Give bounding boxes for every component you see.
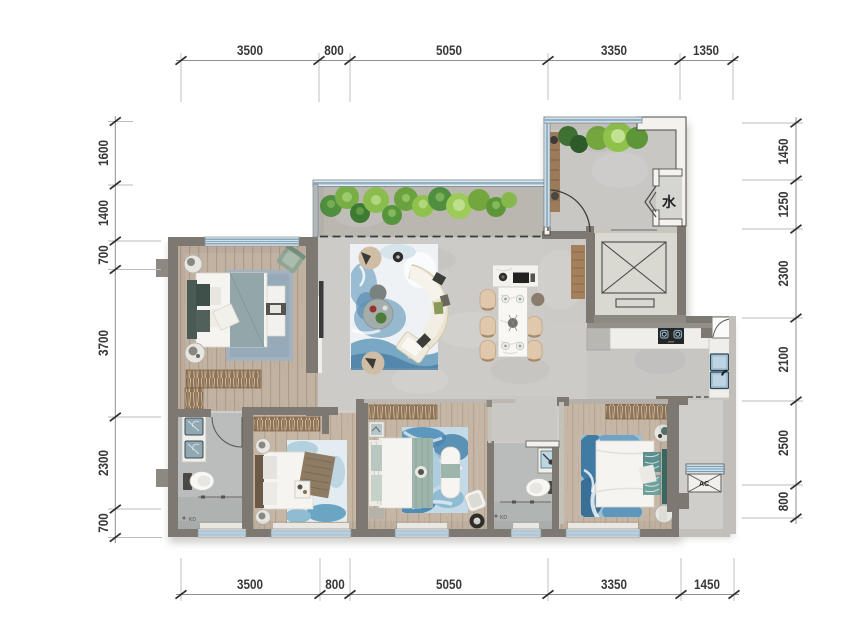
svg-text:800: 800	[775, 492, 791, 512]
svg-text:3500: 3500	[237, 576, 263, 592]
svg-text:1250: 1250	[775, 191, 791, 217]
svg-text:2100: 2100	[775, 346, 791, 372]
svg-text:3500: 3500	[237, 42, 263, 58]
svg-text:1400: 1400	[95, 200, 111, 226]
svg-text:800: 800	[324, 42, 344, 58]
svg-text:3700: 3700	[95, 330, 111, 356]
svg-text:700: 700	[95, 513, 111, 533]
svg-text:KD: KD	[500, 515, 507, 521]
svg-text:2300: 2300	[95, 450, 111, 476]
svg-text:1450: 1450	[775, 138, 791, 164]
svg-text:水: 水	[662, 194, 677, 210]
svg-text:3350: 3350	[601, 576, 627, 592]
svg-text:3350: 3350	[601, 42, 627, 58]
svg-text:AC: AC	[699, 481, 709, 488]
svg-text:5050: 5050	[436, 576, 462, 592]
svg-text:1350: 1350	[693, 42, 719, 58]
svg-text:2500: 2500	[775, 430, 791, 456]
svg-text:1450: 1450	[694, 576, 720, 592]
svg-text:700: 700	[95, 245, 111, 265]
svg-text:1600: 1600	[95, 140, 111, 166]
svg-text:5050: 5050	[436, 42, 462, 58]
svg-text:2300: 2300	[775, 260, 791, 286]
svg-text:800: 800	[325, 576, 345, 592]
